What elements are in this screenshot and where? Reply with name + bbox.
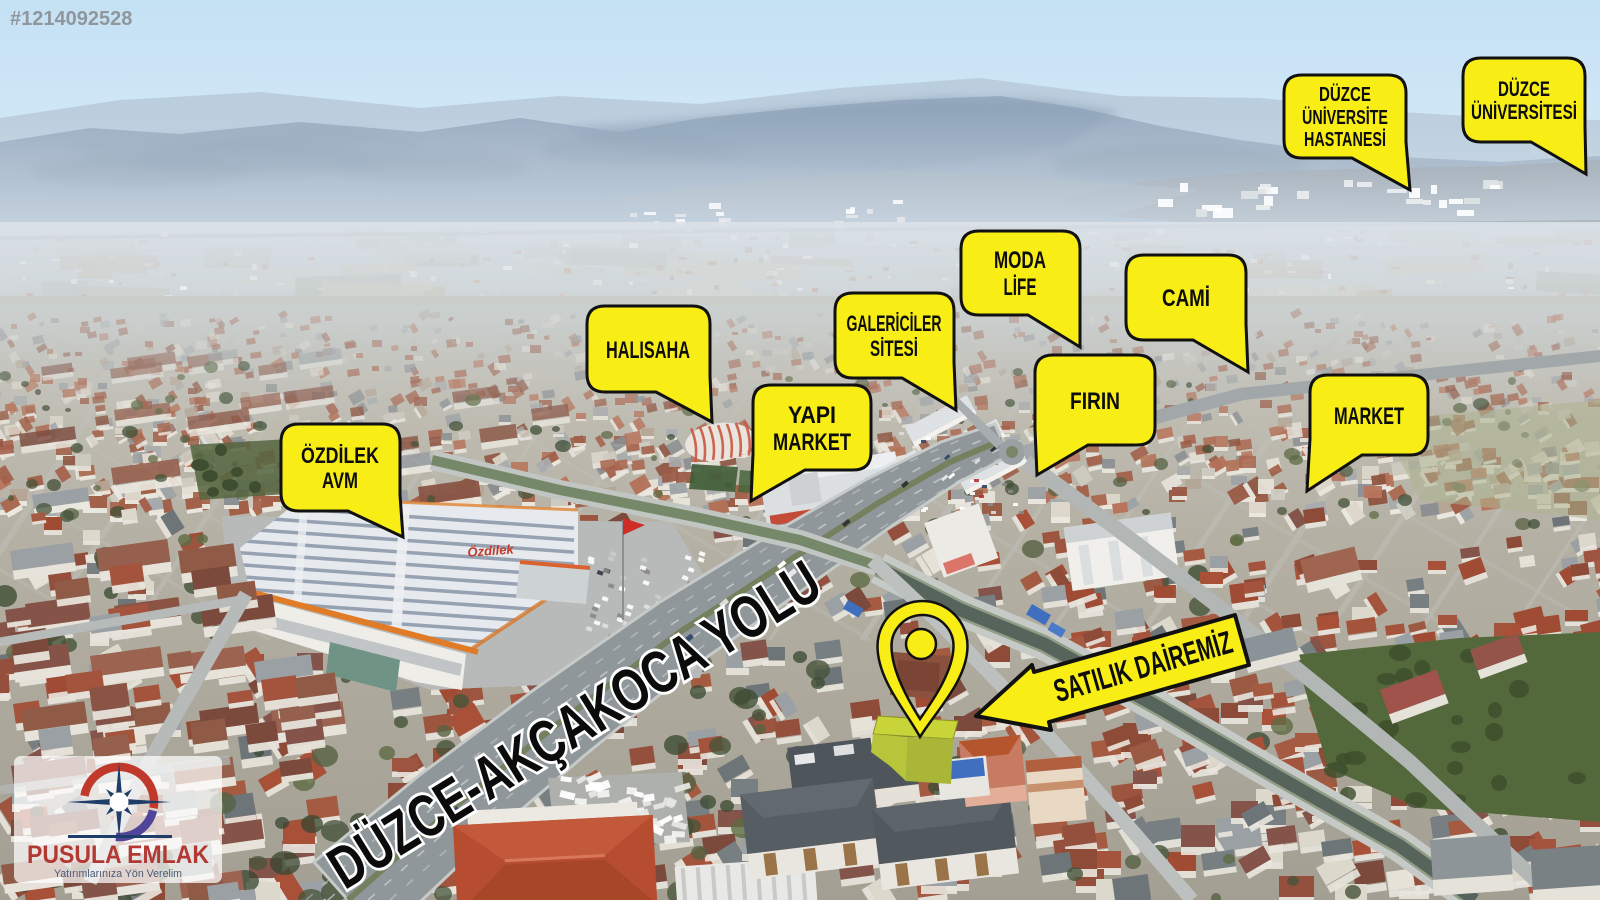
svg-text:HALISAHA: HALISAHA (606, 337, 690, 364)
svg-text:Yatırımlarınıza Yön Verelim: Yatırımlarınıza Yön Verelim (54, 868, 182, 880)
svg-text:#1214092528: #1214092528 (10, 8, 132, 30)
svg-text:GALERİCİLER: GALERİCİLER (847, 311, 942, 336)
svg-text:PUSULA EMLAK: PUSULA EMLAK (27, 841, 209, 869)
svg-text:ÜNİVERSİTESİ: ÜNİVERSİTESİ (1471, 101, 1577, 124)
svg-text:SİTESİ: SİTESİ (870, 336, 918, 361)
svg-text:DÜZCE: DÜZCE (1498, 78, 1550, 101)
svg-text:CAMİ: CAMİ (1162, 285, 1210, 312)
svg-text:HASTANESİ: HASTANESİ (1304, 128, 1386, 151)
svg-text:DÜZCE: DÜZCE (1319, 83, 1371, 106)
svg-text:AVM: AVM (322, 468, 358, 493)
svg-text:ÖZDİLEK: ÖZDİLEK (301, 443, 379, 468)
svg-text:YAPI: YAPI (788, 402, 836, 429)
svg-text:MARKET: MARKET (1334, 403, 1404, 430)
svg-text:LİFE: LİFE (1004, 274, 1037, 301)
svg-text:MODA: MODA (994, 247, 1046, 274)
svg-text:ÜNİVERSİTE: ÜNİVERSİTE (1302, 106, 1388, 129)
svg-text:FIRIN: FIRIN (1070, 388, 1120, 415)
svg-text:MARKET: MARKET (773, 429, 851, 456)
